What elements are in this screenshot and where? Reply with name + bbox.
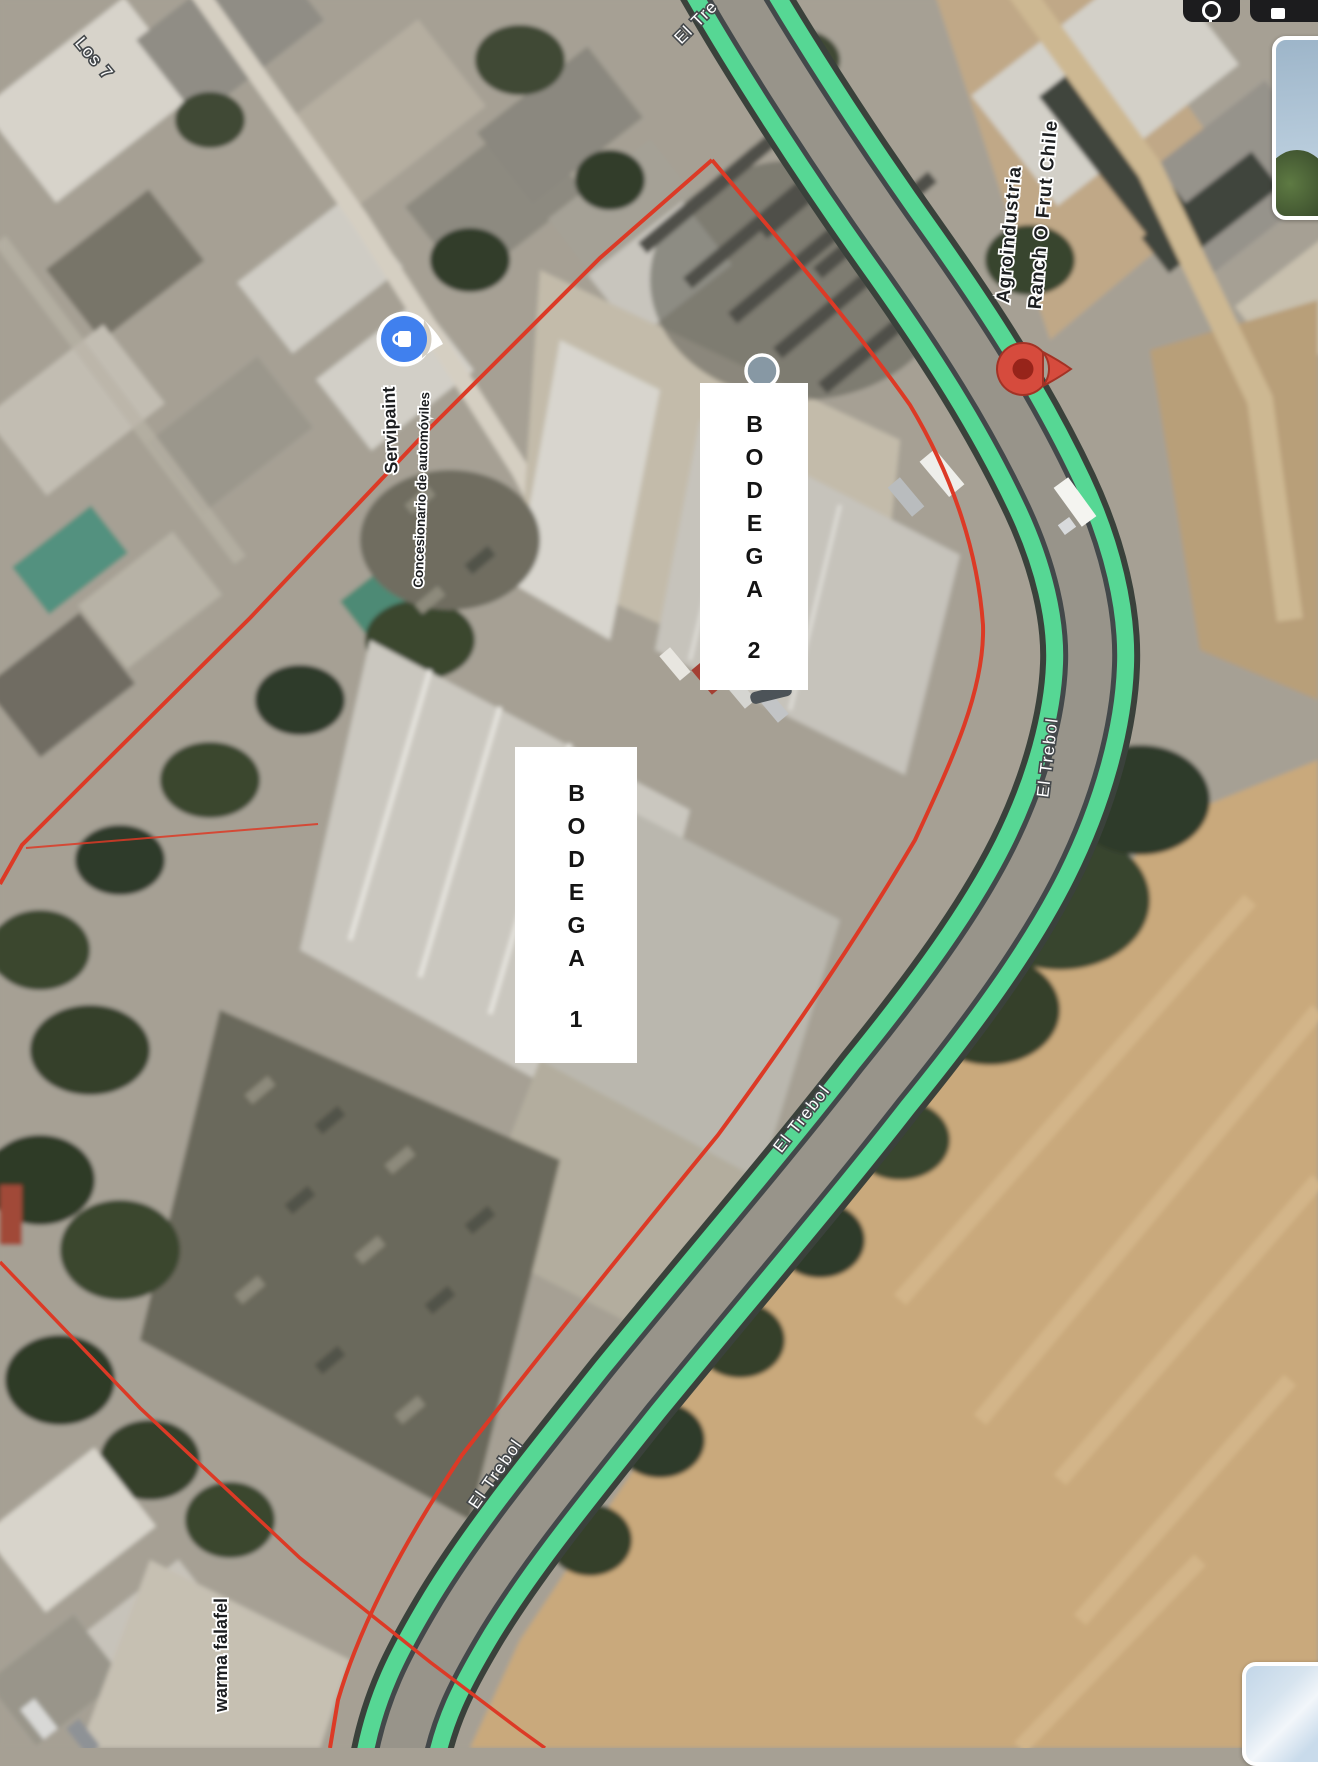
bodega-1-number: 1 [570, 1008, 583, 1031]
minimap-thumbnail[interactable] [1242, 1662, 1318, 1766]
tree-photo [1272, 150, 1318, 220]
servipaint-label[interactable]: Servipaint [378, 386, 401, 474]
satellite-imagery [0, 0, 1318, 1748]
bodega-2-number: 2 [748, 639, 761, 662]
maps-app: { "street_labels": { "top_left": "Los 7"… [0, 0, 1318, 1748]
map-layers-button[interactable] [1250, 0, 1318, 22]
layers-icon [1271, 8, 1285, 19]
annotation-bodega-1: BODEGA 1 [515, 747, 637, 1063]
my-location-button[interactable] [1183, 0, 1240, 22]
annotation-bodega-2: BODEGA 2 [700, 383, 808, 690]
bodega-2-word: BODEGA [743, 411, 766, 609]
streetview-thumbnail[interactable] [1272, 36, 1318, 220]
bodega-1-word: BODEGA [565, 780, 588, 978]
shawarma-falafel-label[interactable]: warma falafel [211, 1598, 231, 1713]
my-location-icon [1202, 1, 1221, 20]
map-canvas[interactable]: Los 7 El Tre El Trebol El Trebol El Treb… [0, 0, 1318, 1748]
